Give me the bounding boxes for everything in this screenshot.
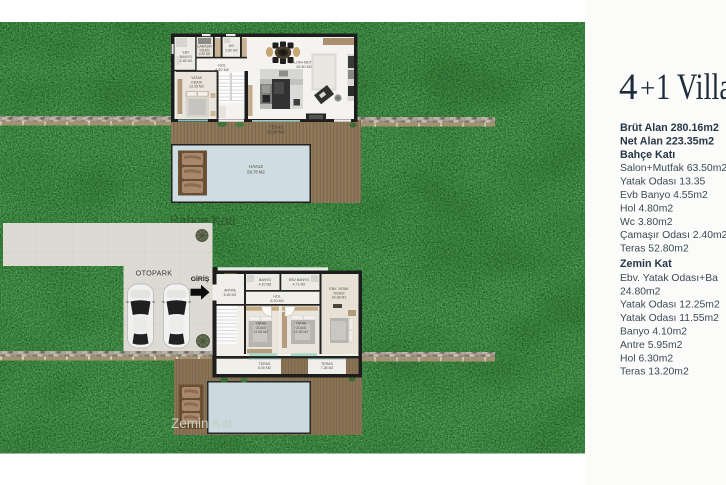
svg-text:Bahçe Katı: Bahçe Katı	[620, 149, 675, 161]
svg-text:OTOPARK: OTOPARK	[136, 269, 173, 278]
svg-text:6.00 M2: 6.00 M2	[258, 366, 271, 370]
svg-text:2.40 M2: 2.40 M2	[199, 52, 211, 56]
svg-text:Yatak Odası 13.35: Yatak Odası 13.35	[620, 177, 706, 188]
svg-text:24.08 M2: 24.08 M2	[332, 296, 347, 300]
svg-text:24.80m2: 24.80m2	[620, 286, 661, 297]
svg-text:Teras 52.80m2: Teras 52.80m2	[620, 244, 689, 255]
svg-text:Net Alan 223.35m2: Net Alan 223.35m2	[620, 135, 714, 147]
svg-text:4: 4	[619, 67, 638, 108]
svg-text:5.45 M2: 5.45 M2	[224, 293, 237, 297]
svg-text:HAVUZ: HAVUZ	[249, 164, 263, 169]
svg-text:Ebv. Yatak Odası+Ba: Ebv. Yatak Odası+Ba	[620, 273, 718, 284]
svg-text:Yatak Odası 12.25m2: Yatak Odası 12.25m2	[620, 300, 720, 311]
svg-text:Hol 6.30m2: Hol 6.30m2	[620, 353, 673, 364]
svg-text:Yatak Odası 11.55m2: Yatak Odası 11.55m2	[620, 313, 719, 324]
svg-text:52.80 M2: 52.80 M2	[267, 130, 285, 135]
svg-text:+: +	[640, 73, 655, 103]
svg-text:59.78 M2: 59.78 M2	[247, 170, 265, 175]
svg-text:1 Villa: 1 Villa	[656, 67, 726, 108]
svg-text:4.71 M2: 4.71 M2	[293, 282, 306, 286]
svg-text:Wc 3.80m2: Wc 3.80m2	[620, 217, 673, 228]
svg-text:Antre 5.95m2: Antre 5.95m2	[620, 340, 683, 351]
svg-text:Teras 13.20m2: Teras 13.20m2	[620, 367, 689, 378]
svg-text:7.28 M2: 7.28 M2	[321, 366, 334, 370]
svg-text:Banyo 4.10m2: Banyo 4.10m2	[620, 327, 687, 338]
svg-text:Brüt Alan 280.16m2: Brüt Alan 280.16m2	[620, 122, 719, 134]
svg-text:12.25 M2: 12.25 M2	[294, 330, 309, 334]
svg-text:Salon+Mutfak 63.50m2: Salon+Mutfak 63.50m2	[620, 163, 726, 174]
svg-text:3.80 M2: 3.80 M2	[225, 48, 238, 52]
svg-text:Hol 4.80m2: Hol 4.80m2	[620, 203, 673, 214]
svg-text:HOL: HOL	[273, 295, 281, 299]
svg-text:Evb Banyo 4.55m2: Evb Banyo 4.55m2	[620, 190, 708, 201]
svg-text:GİRİŞ: GİRİŞ	[191, 275, 210, 283]
svg-text:63.50 M2: 63.50 M2	[296, 65, 311, 69]
svg-text:Çamaşır Odası 2.40m2: Çamaşır Odası 2.40m2	[620, 230, 726, 241]
svg-text:4.10 M2: 4.10 M2	[259, 282, 272, 286]
svg-text:Zemin Kat: Zemin Kat	[171, 416, 233, 431]
svg-text:Zemin Kat: Zemin Kat	[620, 258, 672, 270]
svg-text:11.55 M2: 11.55 M2	[254, 330, 268, 334]
svg-text:HOL: HOL	[218, 64, 226, 68]
svg-text:4.55 M2: 4.55 M2	[180, 59, 193, 63]
svg-text:6.30 M2: 6.30 M2	[270, 299, 283, 303]
svg-text:13.35 M2: 13.35 M2	[189, 85, 204, 89]
